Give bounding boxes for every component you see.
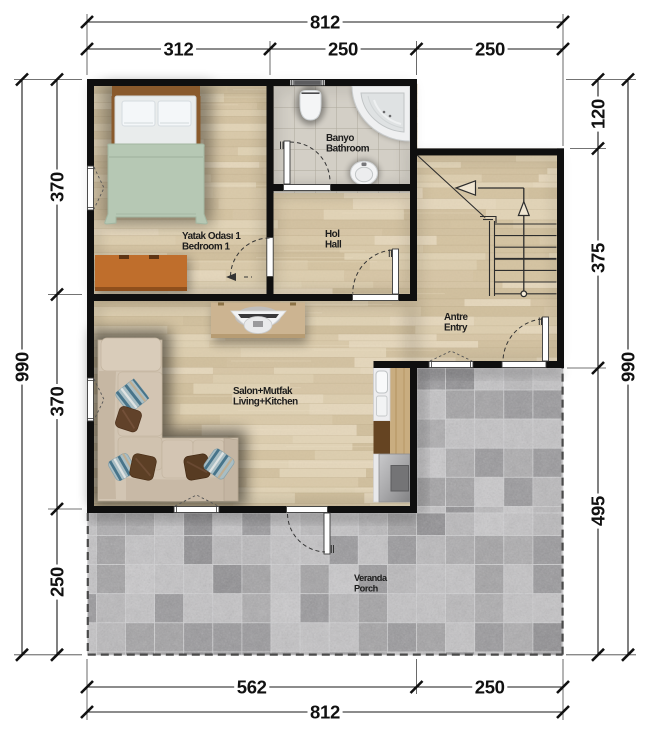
svg-text:Entry: Entry <box>444 323 468 334</box>
svg-text:250: 250 <box>47 567 68 597</box>
svg-text:Banyo: Banyo <box>326 133 354 144</box>
svg-text:Porch: Porch <box>354 584 379 594</box>
svg-text:120: 120 <box>588 99 609 129</box>
svg-text:370: 370 <box>47 387 68 417</box>
svg-text:812: 812 <box>310 702 340 723</box>
svg-text:250: 250 <box>328 39 358 60</box>
svg-text:Living+Kitchen: Living+Kitchen <box>233 397 298 408</box>
svg-text:370: 370 <box>47 172 68 202</box>
svg-text:Salon+Mutfak: Salon+Mutfak <box>233 386 293 397</box>
svg-text:Hall: Hall <box>325 240 342 251</box>
svg-text:990: 990 <box>12 352 33 382</box>
svg-text:250: 250 <box>475 677 505 698</box>
svg-text:990: 990 <box>618 352 639 382</box>
svg-text:Antre: Antre <box>444 312 468 323</box>
svg-text:812: 812 <box>310 12 340 33</box>
svg-text:562: 562 <box>237 677 267 698</box>
svg-text:Hol: Hol <box>325 229 340 240</box>
svg-text:Yatak Odası 1: Yatak Odası 1 <box>182 231 241 242</box>
svg-text:Bathroom: Bathroom <box>326 144 370 155</box>
svg-text:375: 375 <box>588 243 609 273</box>
svg-text:Veranda: Veranda <box>354 573 388 583</box>
svg-text:Bedroom 1: Bedroom 1 <box>182 242 230 253</box>
svg-text:312: 312 <box>164 39 194 60</box>
svg-text:250: 250 <box>475 39 505 60</box>
svg-text:495: 495 <box>588 496 609 526</box>
